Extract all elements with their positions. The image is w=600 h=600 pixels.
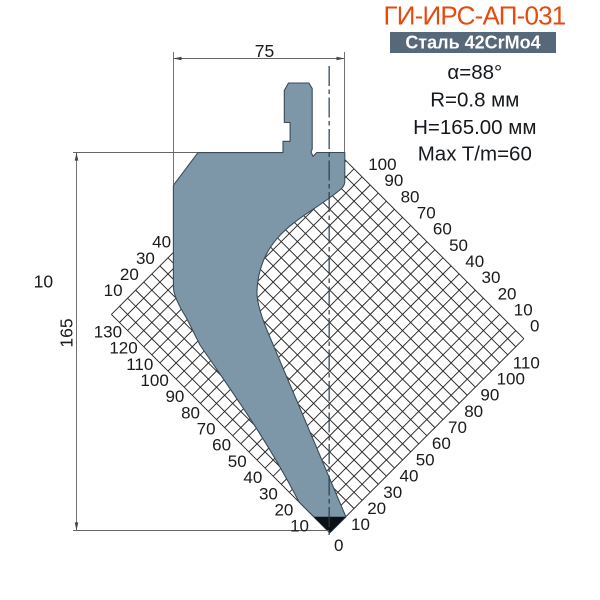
svg-text:75: 75 bbox=[255, 41, 274, 61]
svg-text:70: 70 bbox=[417, 204, 436, 223]
svg-text:ГИ-ИРС-АП-031: ГИ-ИРС-АП-031 bbox=[384, 1, 566, 31]
svg-text:120: 120 bbox=[109, 339, 137, 358]
svg-text:80: 80 bbox=[464, 402, 483, 421]
svg-text:10: 10 bbox=[290, 517, 309, 536]
svg-text:50: 50 bbox=[449, 236, 468, 255]
svg-text:100: 100 bbox=[368, 155, 396, 174]
svg-text:90: 90 bbox=[480, 386, 499, 405]
svg-text:70: 70 bbox=[448, 418, 467, 437]
svg-text:30: 30 bbox=[383, 483, 402, 502]
svg-text:30: 30 bbox=[136, 249, 155, 268]
svg-text:90: 90 bbox=[165, 387, 184, 406]
svg-text:30: 30 bbox=[259, 484, 278, 503]
svg-text:165: 165 bbox=[57, 318, 77, 347]
svg-text:0: 0 bbox=[530, 317, 539, 336]
svg-text:α=88°: α=88° bbox=[447, 61, 502, 84]
svg-text:10: 10 bbox=[104, 281, 123, 300]
svg-text:90: 90 bbox=[384, 171, 403, 190]
svg-text:40: 40 bbox=[243, 468, 262, 487]
svg-text:40: 40 bbox=[152, 233, 171, 252]
svg-text:R=0.8 мм: R=0.8 мм bbox=[430, 89, 519, 112]
svg-text:80: 80 bbox=[401, 187, 420, 206]
svg-text:50: 50 bbox=[416, 450, 435, 469]
svg-text:80: 80 bbox=[181, 403, 200, 422]
svg-text:50: 50 bbox=[228, 452, 247, 471]
svg-text:H=165.00 мм: H=165.00 мм bbox=[413, 116, 536, 139]
svg-text:110: 110 bbox=[513, 353, 540, 372]
svg-text:10: 10 bbox=[34, 272, 54, 292]
svg-text:30: 30 bbox=[482, 268, 501, 287]
svg-text:20: 20 bbox=[498, 284, 517, 303]
svg-text:70: 70 bbox=[197, 420, 216, 439]
svg-text:Сталь 42CrMo4: Сталь 42CrMo4 bbox=[405, 33, 540, 53]
svg-text:Max T/m=60: Max T/m=60 bbox=[418, 143, 532, 166]
svg-text:0: 0 bbox=[334, 536, 343, 555]
svg-text:10: 10 bbox=[514, 301, 533, 320]
svg-text:40: 40 bbox=[400, 467, 419, 486]
svg-text:10: 10 bbox=[351, 515, 370, 534]
svg-text:60: 60 bbox=[433, 220, 452, 239]
svg-text:40: 40 bbox=[465, 252, 484, 271]
svg-text:110: 110 bbox=[126, 355, 153, 374]
svg-text:130: 130 bbox=[94, 323, 122, 342]
